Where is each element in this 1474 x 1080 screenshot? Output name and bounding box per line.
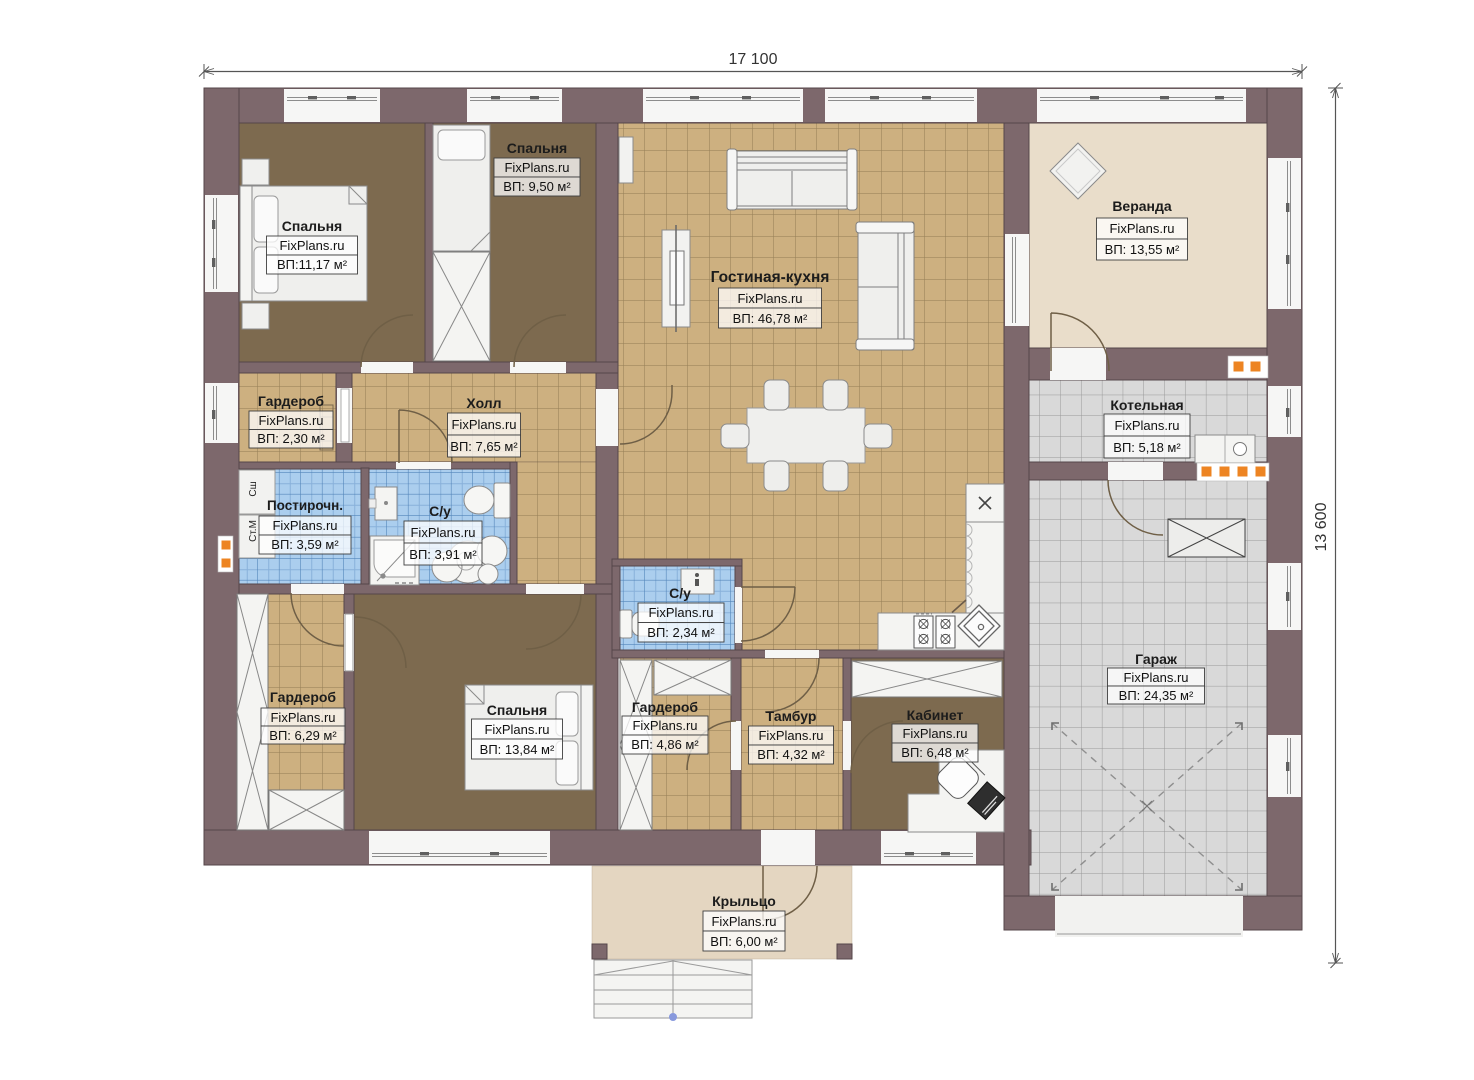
svg-text:13 600: 13 600 (1313, 502, 1330, 551)
svg-text:ВП: 24,35 м²: ВП: 24,35 м² (1119, 688, 1194, 703)
svg-text:Веранда: Веранда (1112, 198, 1172, 214)
svg-text:FixPlans.ru: FixPlans.ru (258, 413, 323, 428)
svg-text:FixPlans.ru: FixPlans.ru (504, 160, 569, 175)
svg-text:Сш: Сш (248, 481, 259, 496)
svg-text:FixPlans.ru: FixPlans.ru (737, 291, 802, 306)
svg-text:С/у: С/у (429, 503, 451, 519)
svg-text:Тамбур: Тамбур (766, 708, 817, 724)
svg-text:17 100: 17 100 (729, 51, 778, 68)
svg-text:ВП: 6,00 м²: ВП: 6,00 м² (710, 934, 778, 949)
svg-text:FixPlans.ru: FixPlans.ru (1109, 221, 1174, 236)
svg-text:ВП: 3,59 м²: ВП: 3,59 м² (271, 537, 339, 552)
svg-text:ВП: 6,29 м²: ВП: 6,29 м² (269, 728, 337, 743)
svg-text:FixPlans.ru: FixPlans.ru (648, 605, 713, 620)
svg-text:FixPlans.ru: FixPlans.ru (270, 710, 335, 725)
svg-text:Холл: Холл (466, 395, 501, 411)
svg-text:FixPlans.ru: FixPlans.ru (758, 728, 823, 743)
svg-text:Спальня: Спальня (507, 140, 567, 156)
svg-text:Гостиная-кухня: Гостиная-кухня (711, 269, 830, 286)
svg-text:ВП: 9,50 м²: ВП: 9,50 м² (503, 179, 571, 194)
svg-text:FixPlans.ru: FixPlans.ru (279, 238, 344, 253)
svg-text:FixPlans.ru: FixPlans.ru (272, 518, 337, 533)
svg-text:Гардероб: Гардероб (258, 393, 325, 409)
svg-text:ВП: 13,84 м²: ВП: 13,84 м² (480, 742, 555, 757)
svg-text:FixPlans.ru: FixPlans.ru (902, 726, 967, 741)
svg-text:FixPlans.ru: FixPlans.ru (1114, 418, 1179, 433)
svg-text:FixPlans.ru: FixPlans.ru (484, 722, 549, 737)
svg-text:ВП: 3,91 м²: ВП: 3,91 м² (409, 547, 477, 562)
svg-text:FixPlans.ru: FixPlans.ru (410, 525, 475, 540)
svg-text:Ст.М: Ст.М (248, 520, 259, 542)
svg-text:Котельная: Котельная (1110, 397, 1183, 413)
svg-text:Спальня: Спальня (487, 702, 547, 718)
svg-text:ВП: 2,30 м²: ВП: 2,30 м² (257, 431, 325, 446)
svg-text:Гардероб: Гардероб (270, 689, 337, 705)
svg-text:Кабинет: Кабинет (907, 707, 964, 723)
svg-text:Гардероб: Гардероб (632, 699, 699, 715)
svg-text:ВП: 13,55 м²: ВП: 13,55 м² (1105, 242, 1180, 257)
svg-text:Гараж: Гараж (1135, 651, 1178, 667)
svg-text:ВП: 4,32 м²: ВП: 4,32 м² (757, 747, 825, 762)
svg-text:FixPlans.ru: FixPlans.ru (1123, 670, 1188, 685)
svg-text:ВП: 46,78 м²: ВП: 46,78 м² (733, 311, 808, 326)
svg-text:Крыльцо: Крыльцо (712, 893, 776, 909)
svg-text:Спальня: Спальня (282, 218, 342, 234)
svg-text:ВП:11,17 м²: ВП:11,17 м² (277, 257, 348, 272)
svg-text:С/у: С/у (669, 585, 691, 601)
svg-text:ВП: 4,86 м²: ВП: 4,86 м² (631, 737, 699, 752)
svg-text:ВП: 2,34 м²: ВП: 2,34 м² (647, 625, 715, 640)
svg-text:ВП: 6,48 м²: ВП: 6,48 м² (901, 745, 969, 760)
svg-text:FixPlans.ru: FixPlans.ru (451, 417, 516, 432)
svg-text:Постирочн.: Постирочн. (267, 498, 343, 513)
svg-text:ВП: 7,65 м²: ВП: 7,65 м² (450, 439, 518, 454)
svg-text:FixPlans.ru: FixPlans.ru (711, 914, 776, 929)
svg-text:ВП: 5,18 м²: ВП: 5,18 м² (1113, 440, 1181, 455)
svg-text:FixPlans.ru: FixPlans.ru (632, 718, 697, 733)
